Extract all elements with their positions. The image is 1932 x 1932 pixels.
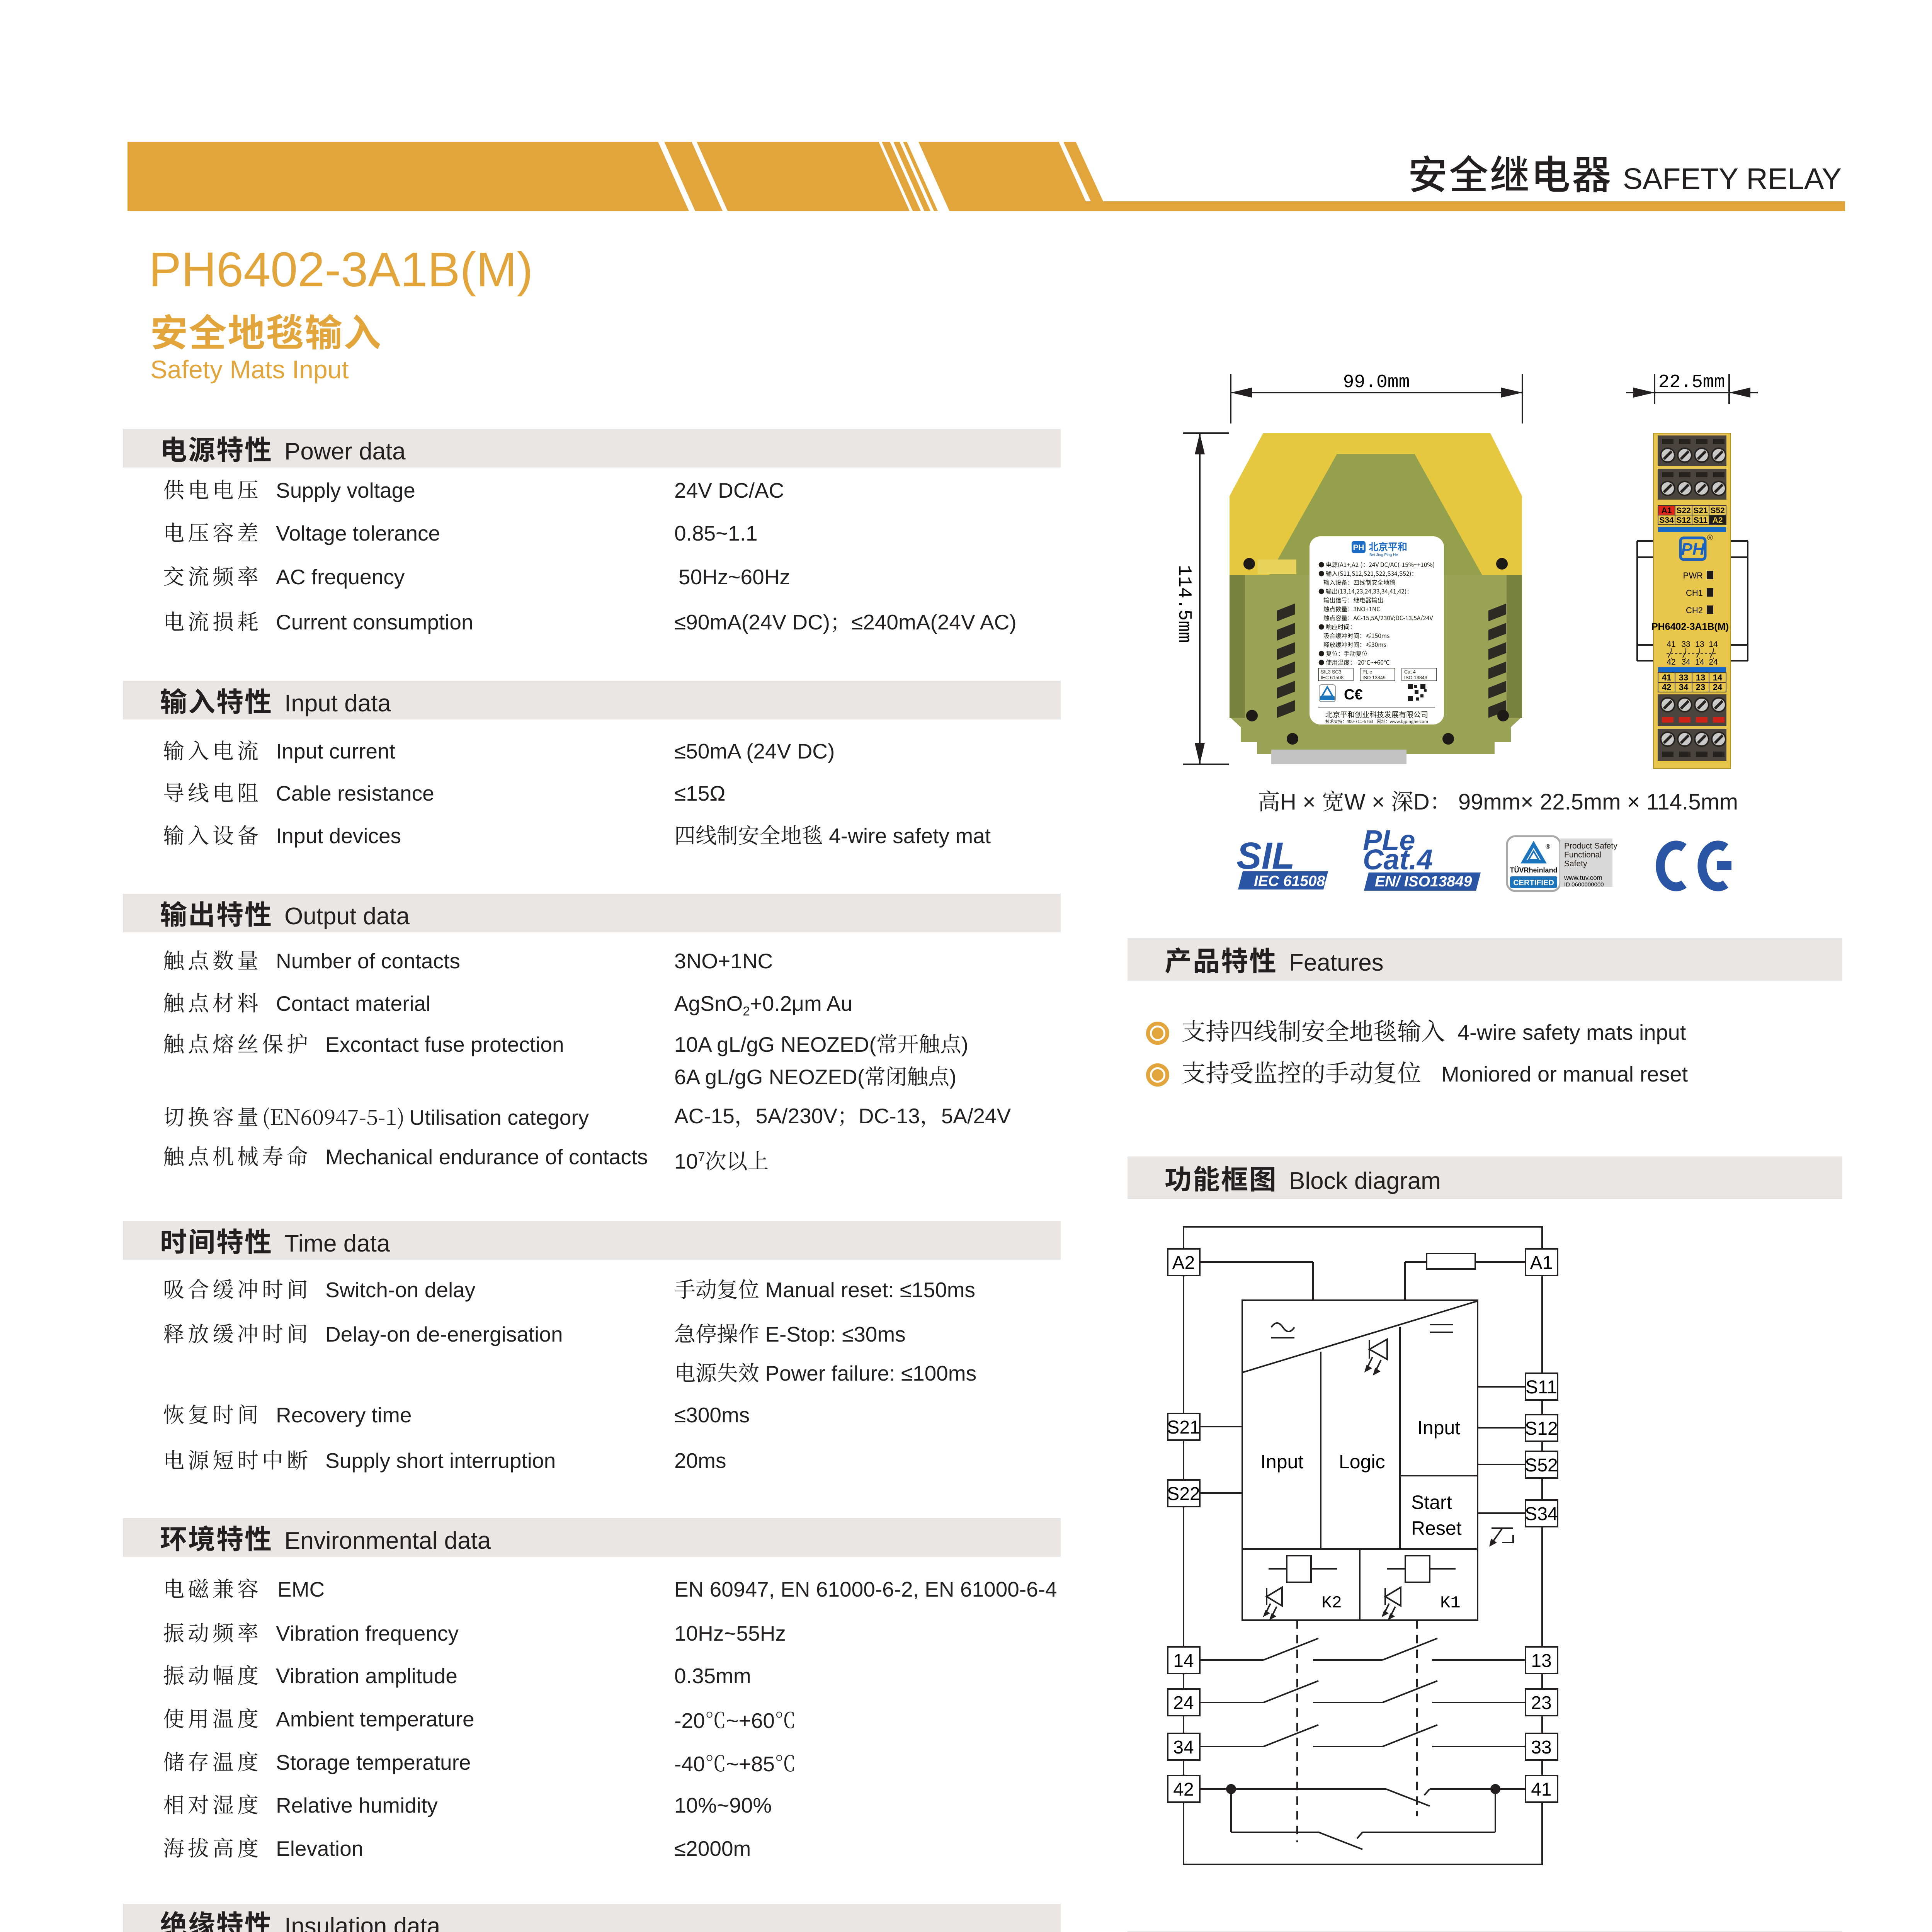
svg-text:24: 24 — [1173, 1693, 1194, 1713]
svg-text:IEC 61508: IEC 61508 — [1254, 873, 1325, 889]
svg-text:Start: Start — [1411, 1492, 1452, 1513]
svg-text:SIL3 SC3: SIL3 SC3 — [1321, 669, 1342, 675]
svg-text:CERTIFIED: CERTIFIED — [1513, 879, 1554, 887]
svg-text:输入设备：四线制安全地毯: 输入设备：四线制安全地毯 — [1323, 578, 1395, 587]
svg-text:EN/ ISO13849: EN/ ISO13849 — [1375, 873, 1472, 890]
svg-text:K1: K1 — [1440, 1594, 1461, 1613]
svg-text:114.5mm: 114.5mm — [1173, 565, 1194, 643]
svg-text:C€: C€ — [1344, 687, 1363, 703]
svg-text:22.5mm: 22.5mm — [1658, 372, 1725, 393]
svg-text:CH2: CH2 — [1686, 605, 1703, 615]
svg-text:42: 42 — [1173, 1779, 1194, 1800]
svg-text:13: 13 — [1696, 673, 1705, 682]
svg-text:● 使用温度：-20℃~+60℃: ● 使用温度：-20℃~+60℃ — [1318, 658, 1389, 667]
svg-text:PH: PH — [1353, 543, 1364, 552]
svg-text:释放缓冲时间：≤30ms: 释放缓冲时间：≤30ms — [1323, 640, 1386, 649]
svg-text:23: 23 — [1696, 682, 1705, 692]
svg-text:S11: S11 — [1526, 1377, 1557, 1398]
svg-text:14: 14 — [1713, 673, 1723, 682]
svg-text:S52: S52 — [1710, 506, 1725, 515]
svg-text:● 电源(A1+,A2-)：24V DC/AC(-15%~+: ● 电源(A1+,A2-)：24V DC/AC(-15%~+10%) — [1318, 560, 1435, 569]
svg-text:Cat 4: Cat 4 — [1404, 669, 1416, 675]
svg-text:Input: Input — [1260, 1451, 1303, 1473]
svg-text:S12: S12 — [1676, 516, 1690, 525]
svg-text:IEC 61508: IEC 61508 — [1321, 675, 1344, 680]
svg-text:北京平和创业科技发展有限公司: 北京平和创业科技发展有限公司 — [1325, 709, 1428, 719]
svg-text:ISO 13849: ISO 13849 — [1404, 675, 1427, 680]
svg-text:A2: A2 — [1713, 516, 1723, 525]
svg-text:● 响应时间：: ● 响应时间： — [1318, 622, 1355, 631]
svg-text:S21: S21 — [1167, 1417, 1200, 1438]
svg-text:Input: Input — [1417, 1417, 1460, 1439]
svg-text:输出信号：继电器输出: 输出信号：继电器输出 — [1323, 596, 1383, 604]
svg-text:S21: S21 — [1693, 506, 1708, 515]
svg-text:34: 34 — [1679, 682, 1689, 692]
svg-text:触点容量：AC-15,5A/230V;DC-13,5A/24: 触点容量：AC-15,5A/230V;DC-13,5A/24V — [1323, 614, 1433, 622]
svg-text:®: ® — [1707, 534, 1713, 542]
svg-text:S34: S34 — [1525, 1504, 1558, 1524]
svg-text:33: 33 — [1531, 1737, 1551, 1758]
svg-text:Logic: Logic — [1339, 1451, 1385, 1473]
svg-text:14: 14 — [1709, 640, 1718, 649]
svg-text:技术支持：400-711-6763 网址：www.bj: 技术支持：400-711-6763 网址：www.bjpinghe.com — [1325, 718, 1428, 724]
svg-text:触点数量：3NO+1NC: 触点数量：3NO+1NC — [1323, 605, 1380, 613]
svg-text:33: 33 — [1679, 673, 1688, 682]
svg-text:● 输出(13,14,23,24,33,34,41,42)：: ● 输出(13,14,23,24,33,34,41,42)： — [1318, 587, 1413, 595]
svg-text:ISO 13849: ISO 13849 — [1362, 675, 1386, 680]
svg-text:Bei Jing Ping He: Bei Jing Ping He — [1369, 553, 1398, 557]
svg-text:www.tuv.com: www.tuv.com — [1564, 874, 1602, 881]
svg-text:S11: S11 — [1694, 516, 1708, 525]
svg-text:41: 41 — [1662, 673, 1671, 682]
svg-text:33: 33 — [1681, 640, 1690, 649]
svg-text:41: 41 — [1531, 1779, 1551, 1800]
svg-text:A2: A2 — [1172, 1253, 1195, 1273]
svg-text:北京平和: 北京平和 — [1369, 539, 1407, 553]
svg-text:K2: K2 — [1321, 1594, 1342, 1613]
svg-text:SIL: SIL — [1236, 835, 1295, 877]
svg-text:● 复位：手动复位: ● 复位：手动复位 — [1318, 649, 1367, 658]
svg-text:吸合缓冲时间：≤150ms: 吸合缓冲时间：≤150ms — [1323, 631, 1389, 640]
svg-text:13: 13 — [1695, 640, 1704, 649]
svg-text:41: 41 — [1667, 640, 1675, 649]
svg-text:Functional: Functional — [1564, 850, 1602, 859]
svg-text:24: 24 — [1713, 682, 1723, 692]
svg-text:Safety: Safety — [1564, 859, 1587, 868]
svg-text:99.0mm: 99.0mm — [1343, 372, 1410, 393]
svg-text:CH1: CH1 — [1686, 588, 1703, 598]
svg-text:Cat.4: Cat.4 — [1363, 844, 1433, 876]
svg-text:TÜVRheinland: TÜVRheinland — [1510, 866, 1557, 874]
svg-text:S52: S52 — [1525, 1455, 1558, 1476]
svg-text:42: 42 — [1662, 682, 1671, 692]
svg-text:PL e: PL e — [1362, 669, 1372, 675]
svg-text:PWR: PWR — [1683, 571, 1703, 580]
svg-text:14: 14 — [1173, 1651, 1194, 1671]
svg-text:PH6402-3A1B(M): PH6402-3A1B(M) — [1651, 621, 1729, 632]
svg-text:®: ® — [1546, 844, 1550, 850]
svg-text:PH: PH — [1681, 540, 1705, 559]
svg-text:A1: A1 — [1662, 506, 1672, 515]
svg-text:S12: S12 — [1525, 1418, 1558, 1439]
svg-text:A1: A1 — [1530, 1253, 1553, 1273]
svg-text:ID 0600000000: ID 0600000000 — [1564, 881, 1604, 888]
svg-text:S22: S22 — [1676, 506, 1690, 515]
svg-text:S34: S34 — [1659, 516, 1674, 525]
svg-text:S22: S22 — [1167, 1484, 1200, 1504]
svg-text:● 输入(S11,S12,S21,S22,S34,S52)：: ● 输入(S11,S12,S21,S22,S34,S52)： — [1318, 569, 1417, 578]
svg-text:13: 13 — [1531, 1651, 1551, 1671]
svg-text:Reset: Reset — [1411, 1517, 1462, 1539]
svg-text:Product Safety: Product Safety — [1564, 842, 1617, 850]
svg-text:34: 34 — [1173, 1737, 1194, 1758]
svg-text:23: 23 — [1531, 1693, 1551, 1713]
